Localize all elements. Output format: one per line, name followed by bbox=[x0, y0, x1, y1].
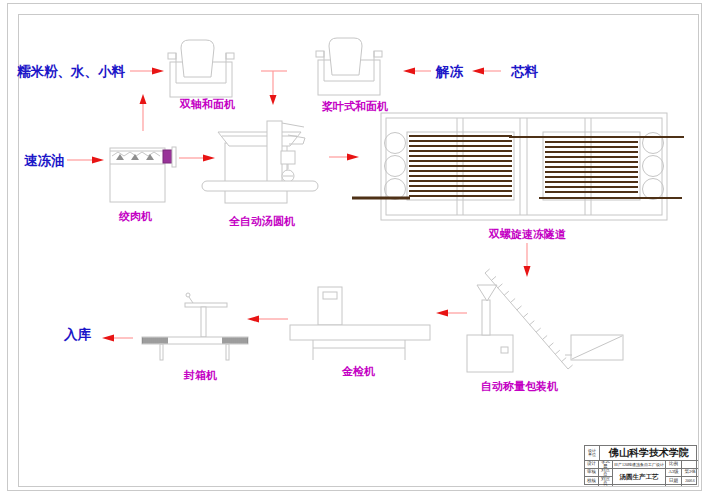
weigh-packer-drawing bbox=[467, 269, 623, 372]
title-block-organization: 佛山科学技术学院 bbox=[600, 446, 698, 461]
title-block-scale-value bbox=[682, 461, 698, 469]
label-weigh-packer: 自动称量包装机 bbox=[481, 379, 558, 394]
label-metal-detector: 金检机 bbox=[342, 364, 375, 379]
title-block-drawing-title: 汤圆生产工艺 bbox=[613, 469, 666, 486]
label-ingredients: 糯米粉、水、小料 bbox=[17, 63, 125, 81]
double-shaft-mixer-drawing bbox=[168, 40, 234, 97]
meat-grinder-drawing bbox=[110, 147, 176, 202]
label-box-sealer: 封箱机 bbox=[184, 368, 217, 383]
title-block-design-name: 李元晨 bbox=[599, 461, 613, 469]
title-block-project: 日产120吨速冻食品工厂设计 bbox=[613, 461, 666, 469]
title-block-sheet-no: 第2张 bbox=[682, 469, 698, 477]
title-block-org-label: 设计 单位 bbox=[585, 446, 600, 461]
cad-drawing-page: 糯米粉、水、小料 速冻油 解冻 芯料 入库 双轴和面机 桨叶式和面机 绞肉机 全… bbox=[0, 0, 708, 499]
title-block-date-label: 日期 bbox=[666, 477, 682, 486]
title-block-check-name: 刘宜良 bbox=[599, 469, 613, 477]
title-block-sheet-size: A3级 bbox=[666, 469, 682, 477]
title-block-proof-label: 校核 bbox=[585, 477, 599, 486]
freezer-belts-left bbox=[409, 136, 512, 196]
title-block-check-label: 审核 bbox=[585, 469, 599, 477]
label-paddle-mixer: 桨叶式和面机 bbox=[322, 99, 388, 114]
flow-arrows bbox=[67, 68, 531, 342]
spiral-freezer-drawing bbox=[352, 113, 684, 220]
label-tangyuan-machine: 全自动汤圆机 bbox=[229, 214, 295, 229]
paddle-mixer-drawing bbox=[316, 38, 382, 95]
label-meat-grinder: 绞肉机 bbox=[119, 209, 152, 224]
title-block-proof-name: 刘宜良 bbox=[599, 477, 613, 486]
label-warehouse: 入库 bbox=[64, 326, 91, 344]
title-block-date-value: 2006.6 bbox=[682, 477, 698, 486]
title-block: 设计 单位 佛山科学技术学院 设计 李元晨 日产120吨速冻食品工厂设计 比例 … bbox=[584, 445, 697, 485]
title-block-design-label: 设计 bbox=[585, 461, 599, 469]
box-sealer-drawing bbox=[142, 293, 248, 360]
title-block-scale-label: 比例 bbox=[666, 461, 682, 469]
label-spiral-freezer: 双螺旋速冻隧道 bbox=[489, 227, 566, 242]
tangyuan-machine-drawing bbox=[202, 121, 318, 203]
label-frozen-oil: 速冻油 bbox=[24, 152, 65, 170]
metal-detector-drawing bbox=[290, 287, 430, 360]
label-filling: 芯料 bbox=[511, 63, 538, 81]
label-double-shaft-mixer: 双轴和面机 bbox=[180, 97, 235, 112]
label-thaw: 解冻 bbox=[436, 63, 463, 81]
